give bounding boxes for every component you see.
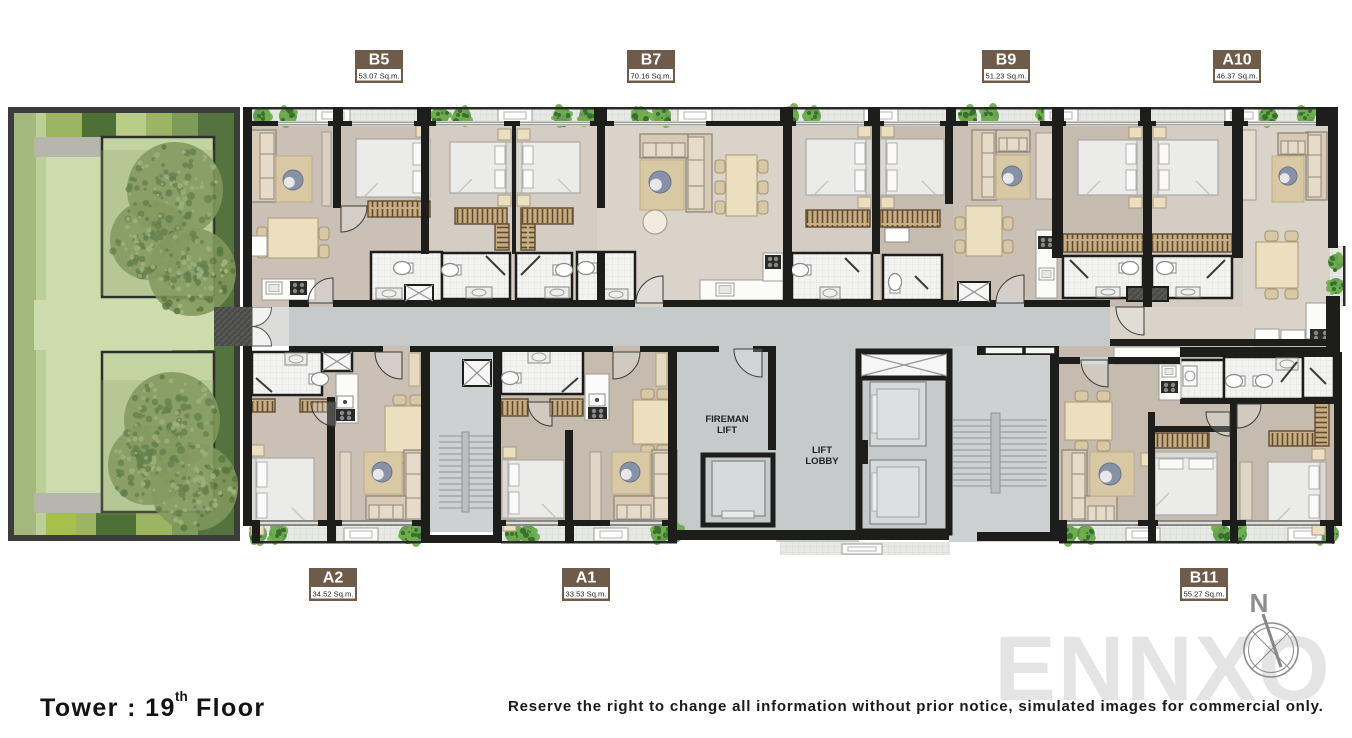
svg-text:34.52 Sq.m.: 34.52 Sq.m. bbox=[313, 590, 354, 599]
svg-text:51.23 Sq.m.: 51.23 Sq.m. bbox=[986, 72, 1027, 81]
svg-text:A10: A10 bbox=[1222, 52, 1251, 69]
svg-text:B7: B7 bbox=[641, 52, 662, 69]
svg-text:70.16 Sq.m.: 70.16 Sq.m. bbox=[631, 72, 672, 81]
svg-text:B5: B5 bbox=[369, 52, 390, 69]
svg-text:th: th bbox=[175, 689, 188, 704]
svg-text:A1: A1 bbox=[576, 570, 597, 587]
svg-text:46.37 Sq.m.: 46.37 Sq.m. bbox=[1217, 72, 1258, 81]
svg-text:Tower : 19: Tower : 19 bbox=[40, 694, 176, 722]
svg-text:Floor: Floor bbox=[196, 694, 266, 722]
svg-text:A2: A2 bbox=[323, 570, 344, 587]
svg-text:FIREMAN: FIREMAN bbox=[705, 414, 748, 425]
svg-text:53.07 Sq.m.: 53.07 Sq.m. bbox=[359, 72, 400, 81]
svg-text:Reserve the right to change al: Reserve the right to change all informat… bbox=[508, 698, 1324, 715]
svg-text:LIFT: LIFT bbox=[717, 425, 737, 436]
svg-text:B9: B9 bbox=[996, 52, 1017, 69]
svg-text:N: N bbox=[1250, 588, 1269, 618]
svg-text:55.27 Sq.m.: 55.27 Sq.m. bbox=[1184, 590, 1225, 599]
svg-text:B11: B11 bbox=[1190, 570, 1219, 587]
svg-text:33.53 Sq.m.: 33.53 Sq.m. bbox=[566, 590, 607, 599]
svg-text:LIFT: LIFT bbox=[812, 445, 832, 456]
svg-text:LOBBY: LOBBY bbox=[805, 456, 839, 467]
